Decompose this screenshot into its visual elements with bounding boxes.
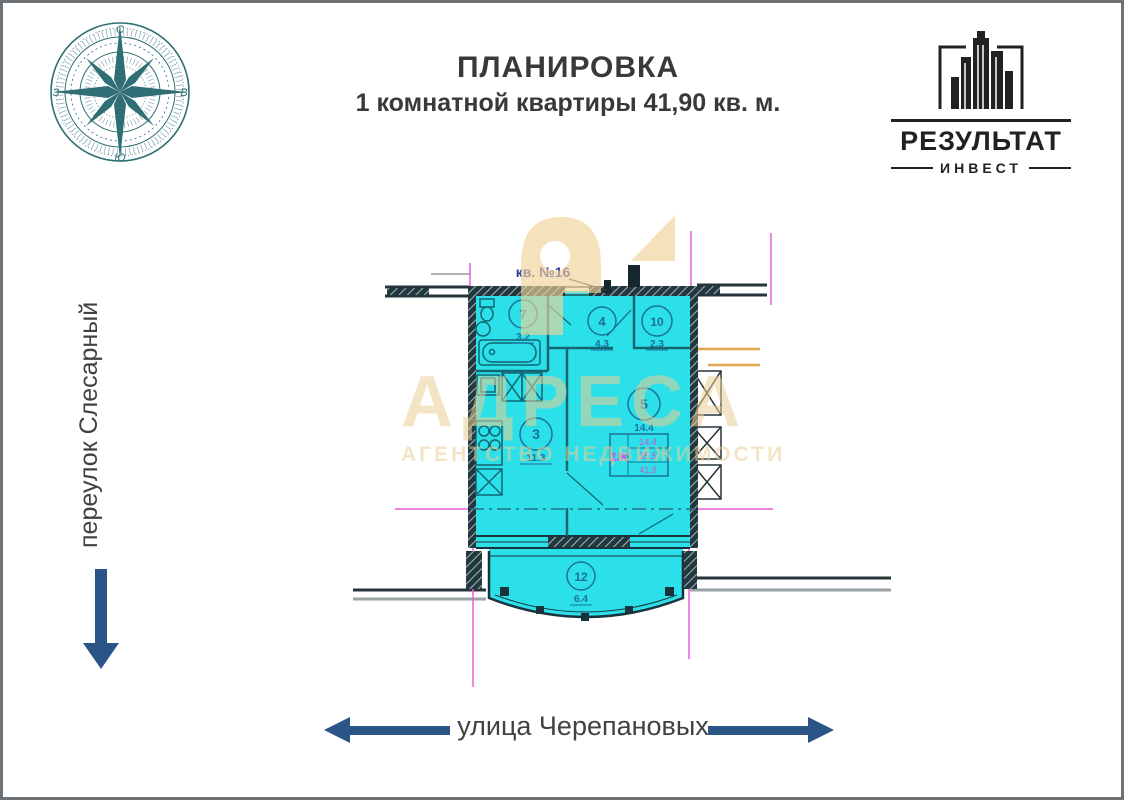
stamp-row-1: 14.4	[639, 437, 657, 447]
context-wall-top-left	[385, 274, 470, 296]
stamp-row-3: 41.9	[639, 465, 657, 475]
svg-text:10: 10	[650, 315, 664, 329]
logo-subname-row: ИНВЕСТ	[891, 160, 1071, 176]
logo-dash-left	[891, 167, 933, 169]
svg-text:2.3: 2.3	[650, 339, 664, 350]
svg-text:4.3: 4.3	[595, 339, 609, 350]
title-line-1: ПЛАНИРОВКА	[253, 51, 883, 85]
apartment-number-label: кв. №16	[516, 264, 571, 280]
logo-dash-right	[1029, 167, 1071, 169]
compass-rose: С В Ю З	[49, 21, 191, 163]
logo-subname: ИНВЕСТ	[940, 160, 1022, 176]
right-arrow-shaft	[708, 726, 808, 735]
stamp-row-2: 35.5	[639, 451, 657, 461]
right-arrow-icon	[808, 717, 834, 743]
logo-rule	[891, 119, 1071, 122]
svg-text:11.3: 11.3	[527, 453, 546, 464]
compass-star	[53, 25, 187, 159]
svg-text:5: 5	[640, 396, 648, 412]
logo-name: РЕЗУЛЬТАТ	[891, 126, 1071, 157]
left-arrow-icon	[324, 717, 350, 743]
company-logo: РЕЗУЛЬТАТ ИНВЕСТ	[891, 31, 1071, 176]
flyer-page: С В Ю З ПЛАНИРОВКА 1 комнатной квартиры …	[0, 0, 1124, 800]
svg-text:12: 12	[574, 570, 588, 584]
svg-text:3.2: 3.2	[516, 332, 530, 343]
compass-south-label: Ю	[114, 152, 125, 163]
svg-text:3: 3	[532, 426, 540, 442]
context-lines-orange	[694, 349, 760, 365]
page-title: ПЛАНИРОВКА 1 комнатной квартиры 41,90 кв…	[253, 51, 883, 118]
title-line-2: 1 комнатной квартиры 41,90 кв. м.	[253, 89, 883, 118]
context-wall-top-right	[697, 285, 767, 295]
compass-north-label: С	[116, 24, 124, 36]
building-icon	[921, 31, 1041, 117]
compass-east-label: В	[180, 87, 187, 99]
svg-text:14.4: 14.4	[634, 423, 654, 434]
svg-text:6.4: 6.4	[574, 594, 588, 605]
svg-text:7: 7	[519, 307, 526, 322]
floor-plan-svg: 7 3.2 4 4.3 10 2.3 3 11.3	[343, 228, 903, 693]
down-arrow-icon	[83, 643, 119, 669]
street-label-left: переулок Слесарный	[75, 285, 115, 565]
compass-west-label: З	[53, 87, 60, 99]
svg-text:4: 4	[598, 314, 606, 329]
stamp-type: 1Ж	[610, 450, 629, 464]
down-arrow-shaft	[95, 569, 107, 645]
